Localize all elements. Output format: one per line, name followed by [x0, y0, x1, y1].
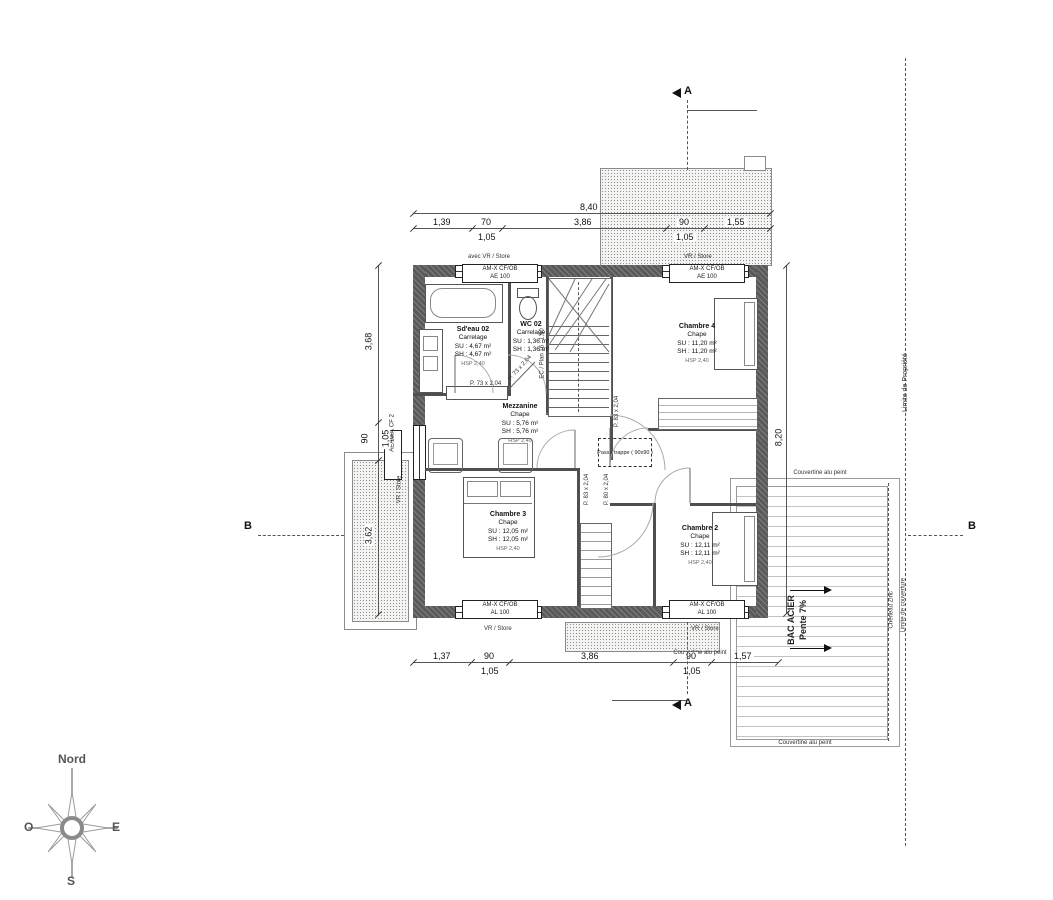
dim-top-total: 8,40 [578, 203, 600, 212]
room-label-wc: WC 02 Carrelage SU : 1,36 m² SH : 1,36 m… [505, 320, 557, 355]
window-type: AM-X CF/OB [482, 602, 517, 608]
dim-right-total: 8,20 [774, 427, 783, 449]
room-note: HSP 2,40 [685, 358, 708, 364]
room-note: HSP 2,40 [496, 546, 519, 552]
section-a-label-top: A [684, 85, 692, 97]
shutter-note-top-right: VR / Store [684, 254, 712, 261]
dim-line-left [378, 265, 379, 615]
room-label-sdeau: Sd'eau 02 Carrelage SU : 4,67 m² SH : 4,… [433, 325, 513, 368]
window-type: AM-X CF/OB [689, 266, 724, 272]
window-sill: AL 100 [491, 610, 510, 616]
room-finish: Chape [510, 411, 529, 418]
room-finish: Chape [687, 331, 706, 338]
dim-top-sub: 1,05 [674, 233, 696, 242]
section-a-arrow-top [672, 88, 681, 98]
door-label-hall-right: P. 83 x 2,04 [614, 396, 621, 427]
window-type: AM-X CF/OB [689, 602, 724, 608]
compass-rose [28, 768, 118, 878]
room-sh: SH : 12,05 m² [488, 536, 528, 543]
window-type: AM-X CF/OB [482, 266, 517, 272]
door-label-hall-mid: P. 80 x 2,04 [604, 474, 611, 505]
property-line-label: Limite de Propriété [902, 336, 910, 412]
window-sill: AE 100 [697, 274, 717, 280]
dim-top-seg: 1,39 [431, 218, 453, 227]
section-a-return-top [687, 110, 757, 111]
compass-south-label: S [67, 874, 75, 888]
dim-bottom-seg: 90 [482, 652, 496, 661]
window-tag-bottom-left: AM-X CF/OB AL 100 [462, 600, 538, 619]
compass-north-label: Nord [50, 752, 94, 766]
room-name: Chambre 3 [490, 511, 526, 518]
floor-plan-sheet: Couvertine alu peint Couvertine alu pein… [0, 0, 1053, 900]
shutter-note-bottom-left: VR / Store [484, 626, 512, 633]
section-b-label-right: B [968, 520, 976, 532]
window-sill: AE 100 [490, 274, 510, 280]
compass-east-label: E [112, 820, 120, 834]
room-label-chambre2: Chambre 2 Chape SU : 12,11 m² SH : 12,11… [660, 524, 740, 567]
compass-west-label: O [24, 820, 33, 834]
door-label-hall-left: P. 83 x 2,04 [584, 474, 591, 505]
section-a-arrow-bottom [672, 700, 681, 710]
room-finish: Carrelage [459, 334, 488, 341]
dim-top-sub: 1,05 [476, 233, 498, 242]
dim-left-mid: 90 [361, 431, 370, 445]
section-b-line-left [258, 535, 344, 536]
room-name: Sd'eau 02 [457, 326, 489, 333]
window-tag-top-left: AM-X CF/OB AE 100 [462, 264, 538, 283]
room-sh: SH : 5,76 m² [502, 428, 538, 435]
property-line [905, 58, 906, 846]
room-finish: Chape [498, 519, 517, 526]
room-label-chambre3: Chambre 3 Chape SU : 12,05 m² SH : 12,05… [468, 510, 548, 553]
room-name: Chambre 4 [679, 323, 715, 330]
room-name: Chambre 2 [682, 525, 718, 532]
room-note: HSP 2,40 [508, 438, 531, 444]
window-tag-top-right: AM-X CF/OB AE 100 [669, 264, 745, 283]
dim-bottom-sub: 1,05 [479, 667, 501, 676]
room-label-chambre4: Chambre 4 Chape SU : 11,20 m² SH : 11,20… [657, 322, 737, 365]
dim-bottom-seg: 1,37 [431, 652, 453, 661]
section-b-label-left: B [244, 520, 252, 532]
room-name: WC 02 [520, 321, 541, 328]
room-note: HSP 2,40 [461, 361, 484, 367]
section-b-line-right [908, 535, 963, 536]
section-a-label-bottom: A [684, 697, 692, 709]
window-tag-bottom-right: AM-X CF/OB AL 100 [669, 600, 745, 619]
section-a-line-bottom [687, 622, 688, 694]
dim-left-bottom: 3,62 [364, 525, 373, 547]
dim-line-bottom [413, 662, 778, 663]
room-su: SU : 11,20 m² [677, 340, 717, 347]
room-su: SU : 12,05 m² [488, 528, 528, 535]
room-su: SU : 4,67 m² [455, 343, 491, 350]
dim-top-seg: 70 [479, 218, 493, 227]
stair-label: EC / Plan 16 : 1,90 [540, 328, 547, 378]
dim-bottom-seg: 3,86 [579, 652, 601, 661]
room-su: SU : 5,76 m² [502, 420, 538, 427]
dim-top-seg: 3,86 [572, 218, 594, 227]
room-sh: SH : 12,11 m² [680, 550, 720, 557]
dim-top-seg: 1,55 [725, 218, 747, 227]
room-note: HSP 2,40 [688, 560, 711, 566]
dim-bottom-seg: 1,57 [732, 652, 754, 661]
room-name: Mezzanine [502, 403, 537, 410]
dim-top-seg: 90 [677, 218, 691, 227]
window-sill: AE 100 [389, 437, 397, 451]
window-sill: AL 100 [698, 610, 717, 616]
plan-linework [0, 0, 1053, 900]
dim-bottom-sub: 1,05 [681, 667, 703, 676]
room-finish: Chape [690, 533, 709, 540]
dim-line-right [786, 265, 787, 613]
dim-left-top: 3,68 [364, 331, 373, 353]
dim-line-top-total [413, 213, 770, 214]
dim-line-top-segments [413, 228, 770, 229]
shutter-note-top-left: avec VR / Store [468, 254, 510, 261]
room-sh: SH : 11,20 m² [677, 348, 717, 355]
room-label-mezzanine: Mezzanine Chape SU : 5,76 m² SH : 5,76 m… [480, 402, 560, 445]
shutter-note-bottom-right: VR / Store [691, 626, 719, 633]
door-label-sdeau: P. 73 x 2,04 [470, 381, 501, 388]
room-su: SU : 12,11 m² [680, 542, 720, 549]
shutter-note-left: VR / Store [396, 476, 403, 504]
room-sh: SH : 4,67 m² [455, 351, 491, 358]
dim-left-mid-sub: 1,05 [381, 428, 390, 450]
